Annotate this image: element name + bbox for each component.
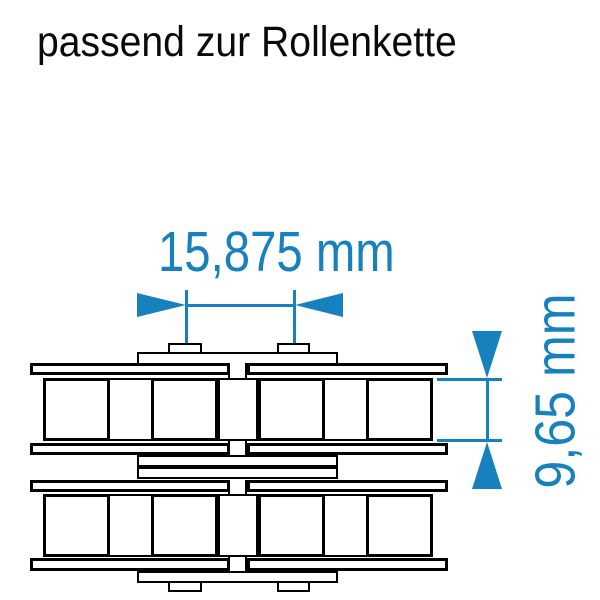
inner-plate-bottom [137, 455, 338, 467]
pitch-dimension-line [186, 304, 295, 307]
roller-1 [43, 378, 110, 441]
center-pin-lower [228, 555, 248, 571]
width-arrow-top-icon [472, 331, 502, 378]
outer-plate-bottom-right [247, 443, 448, 456]
outer-plate-top-left [30, 363, 230, 376]
roller-2 [151, 494, 218, 557]
roller-4 [366, 378, 433, 441]
outer-plate-top-right [247, 480, 448, 493]
page-title: passend zur Rollenkette [37, 20, 457, 65]
pitch-dimension-label: 15,875 mm [158, 224, 395, 281]
center-pin-upper [228, 363, 248, 379]
bushing-left [110, 494, 151, 557]
pitch-arrow-left-icon [137, 293, 186, 317]
roller-3 [258, 378, 325, 441]
outer-plate-bottom-left [30, 558, 230, 571]
center-bushing [218, 378, 258, 441]
outer-plate-top-right [247, 363, 448, 376]
bushing-left [110, 378, 151, 441]
roller-2 [151, 378, 218, 441]
outer-plate-bottom-left [30, 443, 230, 456]
width-connector-line [486, 378, 489, 443]
pitch-extension-line-left [185, 290, 188, 346]
roller-3 [258, 494, 325, 557]
inner-width-dimension-label: 9,65 mm [528, 293, 585, 488]
width-extension-line-top [437, 378, 502, 381]
pin-head-left [168, 581, 202, 593]
roller-4 [366, 494, 433, 557]
outer-plate-bottom-right [247, 558, 448, 571]
technical-drawing-canvas: passend zur Rollenkette 15,875 mm 9,65 m… [0, 0, 600, 600]
width-arrow-bottom-icon [472, 442, 502, 489]
bushing-right [325, 378, 366, 441]
center-pin-lower [228, 439, 248, 455]
pitch-extension-line-right [293, 290, 296, 346]
center-bushing [218, 494, 258, 557]
bushing-right [325, 494, 366, 557]
inner-plate-top [137, 467, 338, 479]
roller-1 [43, 494, 110, 557]
pitch-arrow-right-icon [295, 293, 343, 317]
pin-head-right [277, 581, 310, 593]
outer-plate-top-left [30, 480, 230, 493]
